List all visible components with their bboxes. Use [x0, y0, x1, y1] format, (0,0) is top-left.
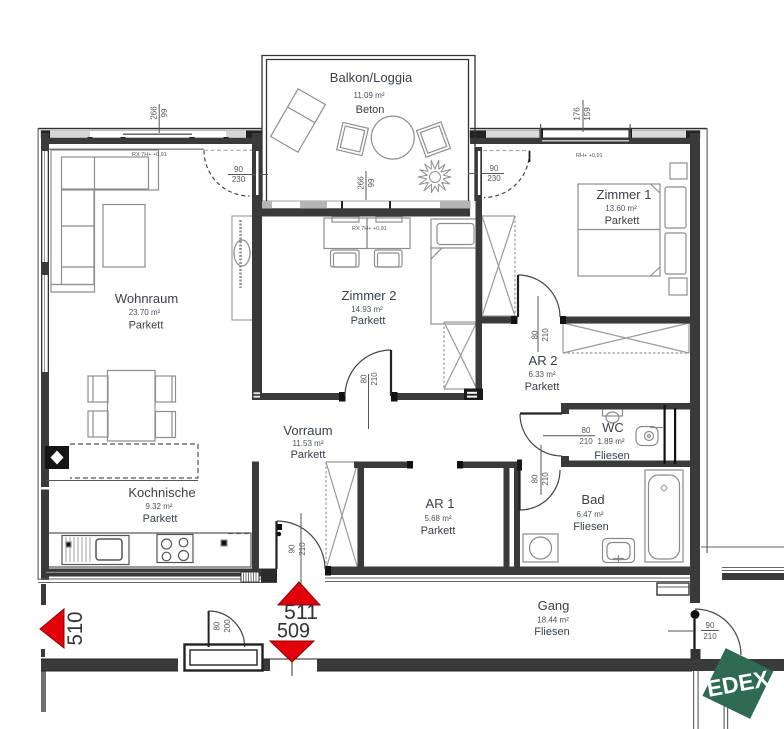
- svg-text:210: 210: [703, 632, 717, 641]
- svg-text:18.44 m²: 18.44 m²: [537, 616, 569, 625]
- svg-text:1.89 m²: 1.89 m²: [597, 437, 624, 446]
- svg-text:90: 90: [490, 164, 499, 173]
- svg-text:Gang: Gang: [538, 598, 570, 613]
- svg-text:510: 510: [64, 612, 87, 646]
- svg-text:Zimmer 1: Zimmer 1: [597, 187, 652, 202]
- svg-text:210: 210: [579, 437, 593, 446]
- svg-text:230: 230: [487, 174, 501, 183]
- svg-text:80: 80: [531, 474, 540, 483]
- svg-text:266: 266: [357, 176, 366, 190]
- svg-text:80: 80: [582, 426, 591, 435]
- svg-text:176: 176: [573, 107, 582, 121]
- svg-text:200: 200: [223, 619, 232, 633]
- svg-text:Balkon/Loggia: Balkon/Loggia: [330, 70, 413, 85]
- svg-text:Wohnraum: Wohnraum: [115, 291, 178, 306]
- svg-text:5.68 m²: 5.68 m²: [424, 514, 451, 523]
- svg-text:80: 80: [213, 621, 222, 630]
- svg-text:6.33 m²: 6.33 m²: [528, 370, 555, 379]
- svg-text:230: 230: [232, 175, 246, 184]
- svg-text:Parkett: Parkett: [421, 525, 456, 537]
- svg-text:210: 210: [541, 328, 550, 342]
- svg-text:Fliesen: Fliesen: [534, 626, 569, 638]
- svg-text:90: 90: [234, 165, 243, 174]
- svg-text:13.60 m²: 13.60 m²: [605, 204, 637, 213]
- svg-text:Parkett: Parkett: [291, 449, 326, 461]
- svg-text:210: 210: [370, 372, 379, 386]
- svg-text:Zimmer 2: Zimmer 2: [342, 288, 397, 303]
- svg-text:11.09 m²: 11.09 m²: [354, 91, 385, 100]
- svg-text:9.32 m²: 9.32 m²: [145, 502, 172, 511]
- svg-text:14.93 m²: 14.93 m²: [351, 305, 383, 314]
- svg-text:11.53 m²: 11.53 m²: [293, 439, 324, 448]
- svg-text:159: 159: [583, 107, 592, 121]
- svg-text:6.47 m²: 6.47 m²: [576, 510, 603, 519]
- svg-text:90: 90: [706, 621, 715, 630]
- svg-text:Vorraum: Vorraum: [283, 423, 332, 438]
- svg-text:80: 80: [360, 374, 369, 383]
- svg-text:99: 99: [367, 178, 376, 187]
- svg-text:Parkett: Parkett: [605, 215, 640, 227]
- svg-text:266: 266: [149, 106, 158, 120]
- svg-text:RX 7H+ +0,91: RX 7H+ +0,91: [132, 152, 167, 158]
- svg-text:AR 1: AR 1: [426, 496, 455, 511]
- svg-text:23.70 m²: 23.70 m²: [129, 308, 161, 317]
- svg-text:Beton: Beton: [356, 104, 385, 116]
- svg-text:Parkett: Parkett: [129, 320, 164, 332]
- svg-text:Parkett: Parkett: [351, 315, 386, 327]
- svg-text:210: 210: [541, 472, 550, 486]
- svg-text:RH+ +0,91: RH+ +0,91: [576, 153, 603, 159]
- svg-text:RX 7H+ +0,91: RX 7H+ +0,91: [352, 226, 387, 232]
- svg-text:90: 90: [288, 544, 297, 553]
- svg-text:Bad: Bad: [581, 492, 604, 507]
- svg-text:Parkett: Parkett: [143, 513, 178, 525]
- svg-text:Fliesen: Fliesen: [573, 521, 608, 533]
- svg-text:210: 210: [298, 542, 307, 556]
- svg-text:80: 80: [531, 330, 540, 339]
- svg-text:99: 99: [160, 108, 169, 117]
- svg-text:Kochnische: Kochnische: [128, 485, 195, 500]
- svg-text:WC: WC: [602, 420, 624, 435]
- svg-text:AR 2: AR 2: [529, 353, 558, 368]
- svg-text:Parkett: Parkett: [525, 381, 560, 393]
- svg-text:509: 509: [277, 620, 310, 643]
- svg-text:Fliesen: Fliesen: [594, 450, 629, 462]
